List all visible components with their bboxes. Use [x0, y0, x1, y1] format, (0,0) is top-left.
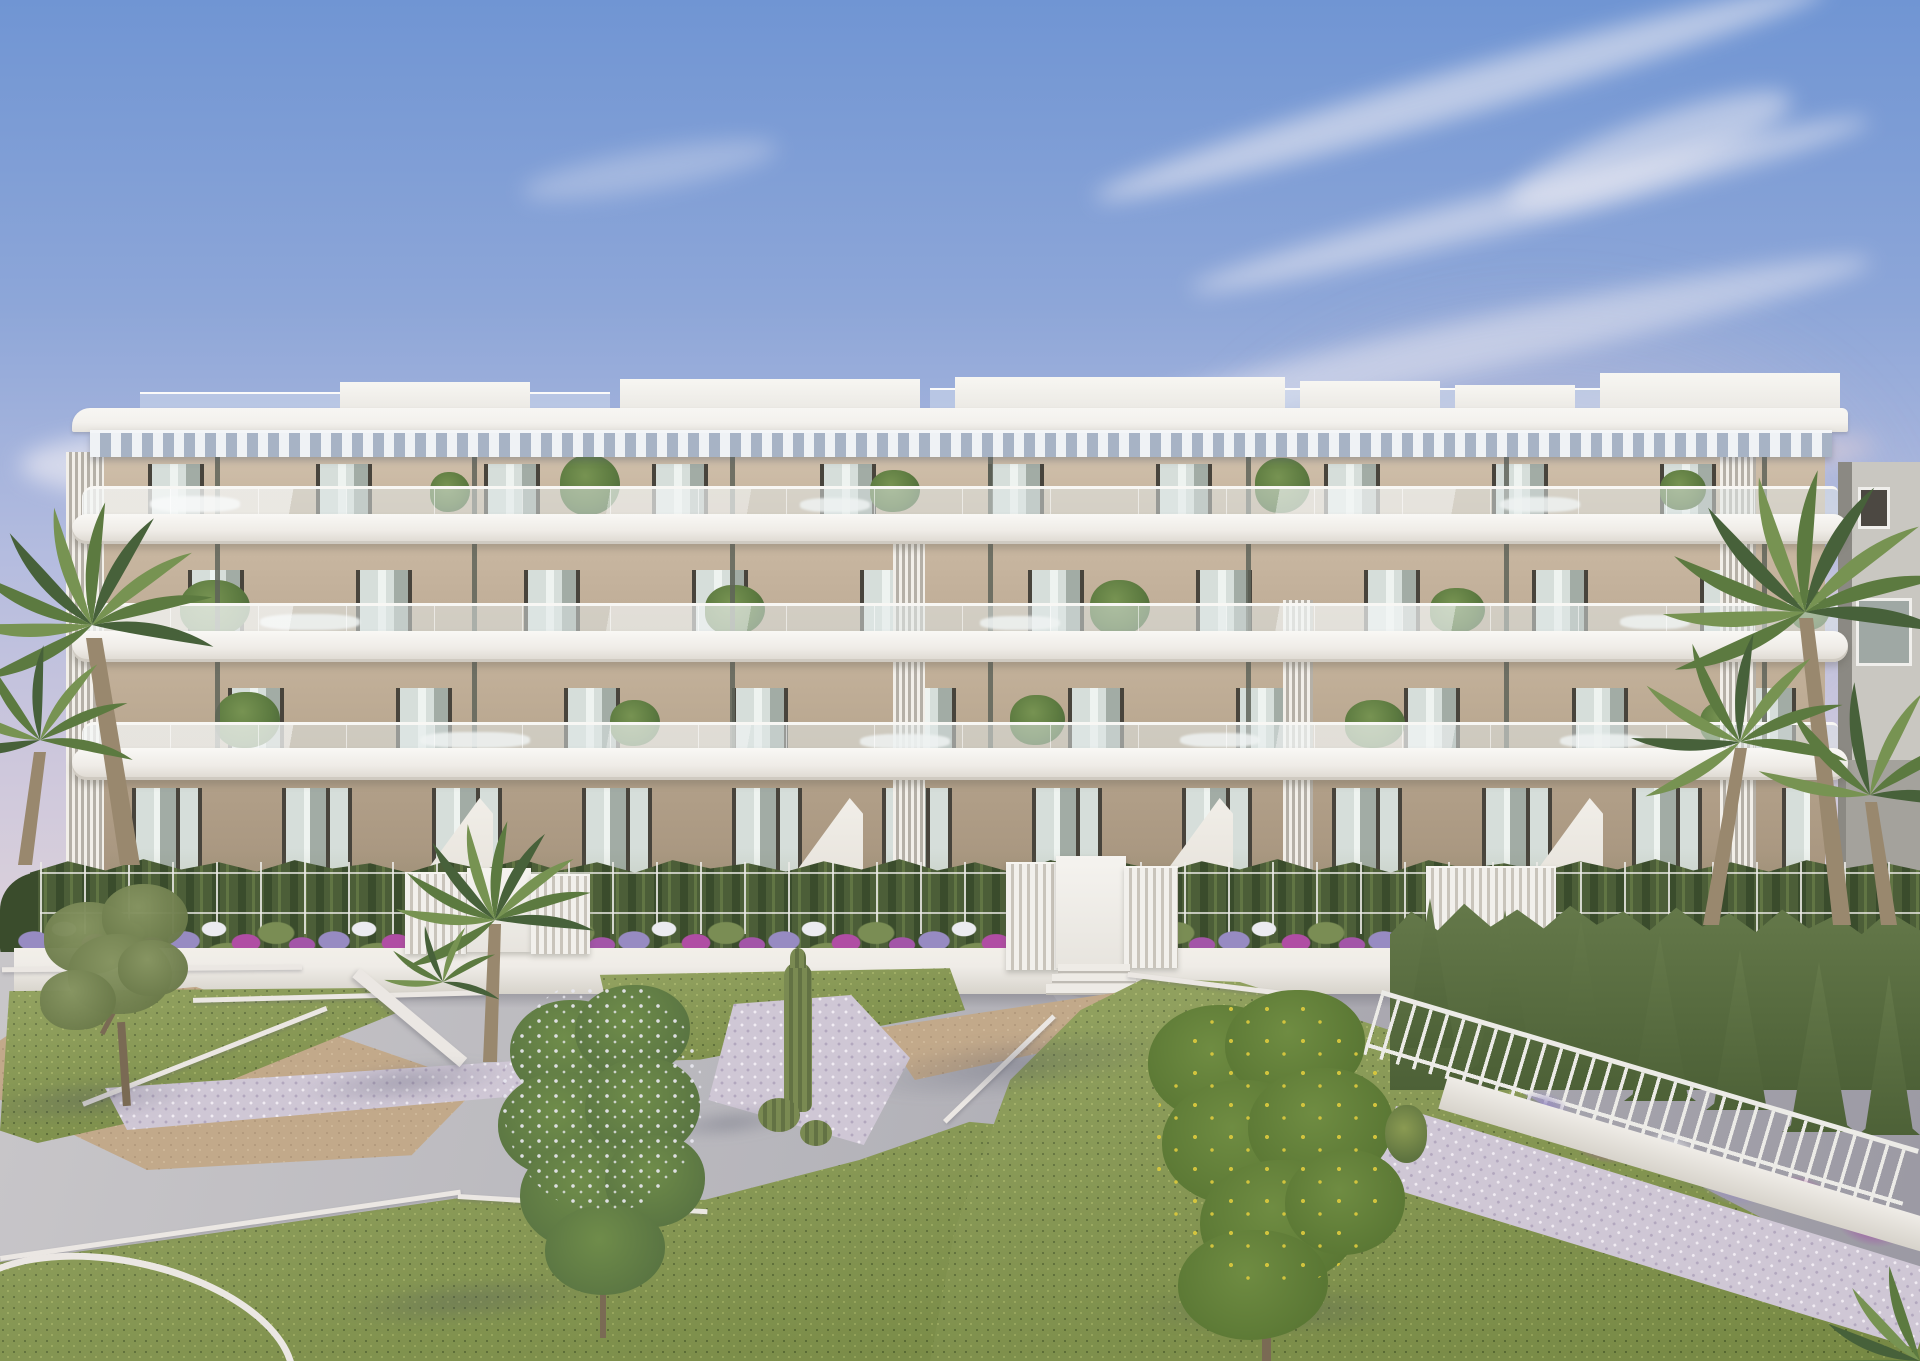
palm-trunk — [1865, 802, 1897, 925]
palm-trunk — [1703, 748, 1747, 925]
barrel-cactus — [758, 1098, 800, 1132]
palm-tree-left-edge — [0, 520, 217, 865]
columnar-cactus-tip — [790, 948, 806, 968]
palm-trees-right-edge — [1655, 500, 1920, 925]
roof-structure — [340, 382, 530, 410]
balcony-band-floor2 — [72, 748, 1848, 780]
palm-head — [1757, 682, 1920, 824]
step — [1052, 974, 1136, 983]
roof-structure — [1455, 385, 1575, 410]
roof-fascia — [72, 408, 1848, 432]
olive-tree-crown — [40, 970, 116, 1030]
step — [1058, 964, 1130, 973]
yellow-flower-shrub — [1385, 1105, 1427, 1163]
balcony-band-floor3 — [72, 631, 1848, 662]
gate-slat-panel — [1124, 866, 1178, 968]
balcony-band-floor4 — [72, 514, 1848, 544]
olive-tree-crown — [118, 940, 188, 996]
palm-trunk — [18, 752, 46, 865]
architectural-render-scene — [0, 0, 1920, 1361]
palm-head — [0, 501, 215, 684]
pergola-slats — [90, 430, 1832, 457]
roof-structure — [955, 377, 1285, 410]
roof-structure — [620, 379, 920, 410]
columnar-cactus — [784, 962, 812, 1112]
roof-structure — [1300, 381, 1440, 410]
gate-slat-panel — [1006, 862, 1058, 970]
palm-head-small — [384, 925, 500, 1007]
palm-head — [1662, 469, 1920, 675]
gate-solid-panel — [1056, 856, 1126, 968]
fence-rail — [40, 872, 1920, 874]
barrel-cactus — [800, 1120, 832, 1146]
garden-gate-center — [1006, 856, 1178, 968]
palm-frond-bottom-right — [1828, 1282, 1920, 1361]
roof-structure — [1600, 373, 1840, 410]
